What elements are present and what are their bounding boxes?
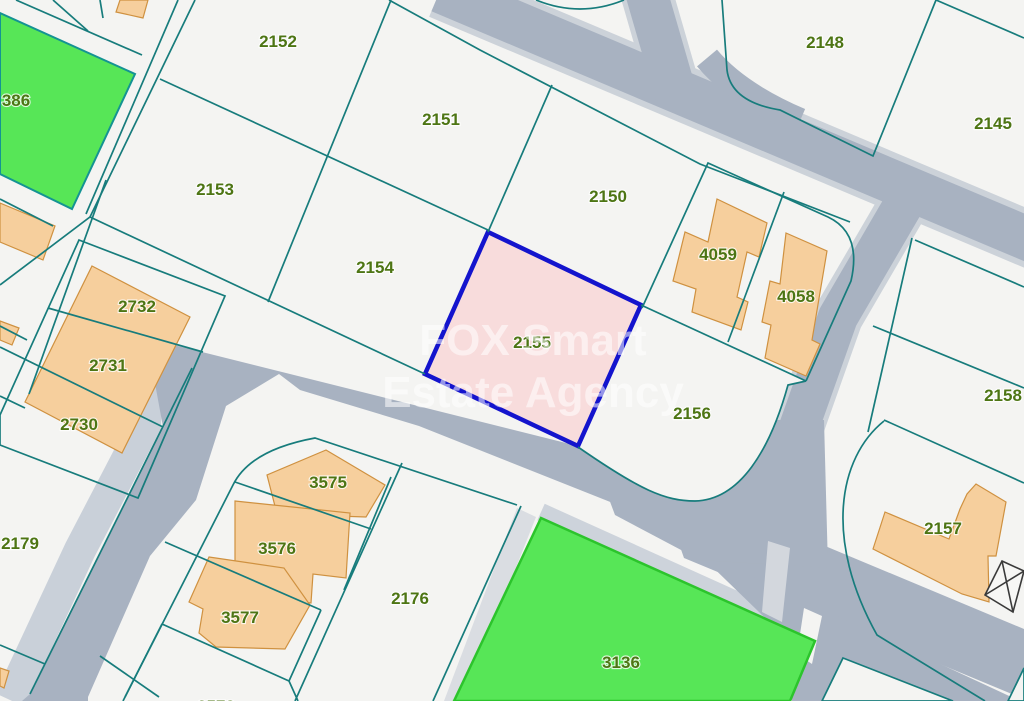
svg-text:4059: 4059 [699,245,737,264]
svg-text:3578: 3578 [197,697,235,701]
svg-text:2157: 2157 [924,519,962,538]
svg-text:3575: 3575 [309,473,347,492]
svg-text:2158: 2158 [984,386,1022,405]
svg-text:Estate Agency: Estate Agency [382,368,684,417]
svg-text:3136: 3136 [602,653,640,672]
svg-text:2152: 2152 [259,32,297,51]
svg-text:2154: 2154 [356,258,394,277]
svg-text:386: 386 [2,91,30,110]
svg-text:2179: 2179 [1,534,39,553]
svg-text:2176: 2176 [391,589,429,608]
svg-text:2148: 2148 [806,33,844,52]
svg-text:2731: 2731 [89,356,127,375]
svg-text:2732: 2732 [118,297,156,316]
svg-text:3577: 3577 [221,608,259,627]
svg-text:2151: 2151 [422,110,460,129]
svg-text:3576: 3576 [258,539,296,558]
svg-text:FOX Smart: FOX Smart [419,316,647,365]
svg-text:2153: 2153 [196,180,234,199]
svg-text:4058: 4058 [777,287,815,306]
svg-text:2730: 2730 [60,415,98,434]
svg-text:2150: 2150 [589,187,627,206]
svg-text:2145: 2145 [974,114,1012,133]
